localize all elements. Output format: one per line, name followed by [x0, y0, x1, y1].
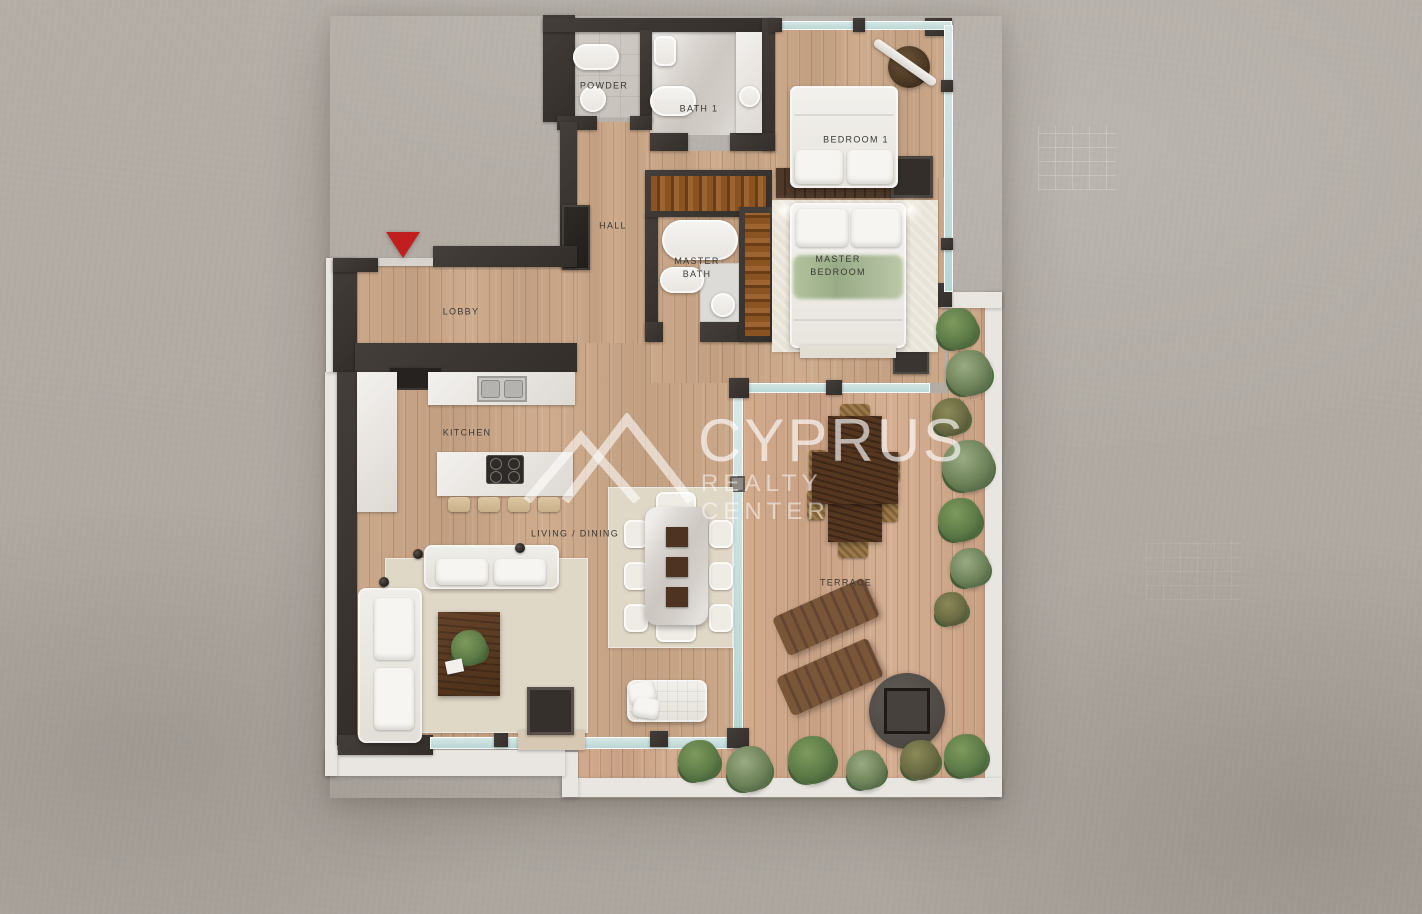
closet — [739, 207, 776, 342]
bedside-lamp — [776, 202, 792, 218]
sink-basin — [504, 380, 523, 398]
burner — [490, 471, 502, 483]
bedside-lamp — [902, 202, 918, 218]
pillow — [795, 150, 843, 184]
fire-pit-insert — [884, 688, 930, 734]
room-label-lobby: LOBBY — [443, 306, 480, 319]
foot-bench — [800, 345, 896, 358]
plant — [678, 740, 720, 782]
wall — [333, 258, 357, 372]
room-label-bedroom1: BEDROOM 1 — [823, 134, 889, 147]
glass-mullion — [853, 18, 865, 32]
bath1-vanity-counter — [736, 32, 762, 133]
room-label-kitchen: KITCHEN — [443, 427, 492, 440]
wall — [543, 18, 775, 32]
table-centerpiece — [666, 587, 688, 607]
watermark-tagline: REALTY CENTER — [701, 470, 950, 526]
pillow — [847, 150, 893, 184]
shower-drain — [711, 293, 735, 317]
master-bathtub — [662, 220, 738, 260]
plant — [934, 592, 968, 626]
kitchen-counter — [357, 372, 397, 512]
background-grid-marks — [1146, 540, 1241, 600]
room-label-bath1: BATH 1 — [680, 103, 719, 116]
floor-lamp — [515, 543, 525, 553]
wall — [630, 116, 652, 130]
cooktop — [486, 455, 524, 484]
entry-arrow-icon — [386, 232, 420, 258]
room-label-living-dining: LIVING / DINING — [531, 528, 619, 541]
floor-lamp — [413, 549, 423, 559]
wall — [337, 372, 357, 745]
tv-screen — [527, 687, 574, 735]
sink-basin — [481, 380, 500, 398]
burner — [508, 458, 520, 470]
daybed — [627, 680, 707, 722]
wall — [645, 322, 663, 342]
sofa-cushion — [436, 559, 488, 585]
wall — [762, 18, 775, 151]
bath1-sink — [739, 86, 760, 107]
plant — [726, 746, 772, 792]
book — [445, 658, 464, 674]
entry-threshold — [378, 258, 433, 266]
wall — [640, 30, 652, 122]
wall — [730, 133, 775, 151]
room-label-hall: HALL — [599, 220, 627, 233]
watermark: CYPRUS REALTY CENTER — [520, 408, 950, 508]
plant — [846, 750, 886, 790]
glass-mullion — [494, 733, 508, 747]
duvet-fold — [794, 114, 894, 116]
floor-plan-canvas: POWDER BATH 1 BEDROOM 1 HALL MASTER BATH… — [0, 0, 1422, 914]
background-grid-marks — [1038, 126, 1116, 190]
floor-lamp — [379, 577, 389, 587]
sofa — [358, 588, 422, 743]
exterior-wall-face — [325, 372, 337, 776]
closet-hanging-clothes — [651, 176, 766, 211]
wall — [650, 133, 688, 151]
pillow — [851, 209, 901, 247]
glass-mullion — [941, 80, 953, 92]
wall — [433, 246, 577, 267]
powder-sink — [573, 44, 619, 70]
glass-mullion — [770, 18, 782, 32]
coffee-table — [438, 612, 500, 696]
glass-mullion — [729, 378, 749, 398]
glass-mullion — [826, 380, 842, 395]
outdoor-chair — [838, 540, 868, 558]
glass-mullion — [727, 728, 749, 748]
plant — [944, 734, 988, 778]
table-centerpiece — [666, 527, 688, 547]
lobby-floor — [357, 266, 577, 343]
room-label-powder: POWDER — [580, 80, 628, 93]
bar-stool — [478, 497, 500, 512]
watermark-logo-icon — [523, 413, 695, 503]
kitchen-sink — [477, 376, 527, 402]
wall — [333, 258, 378, 272]
glass-wall — [944, 25, 953, 292]
room-label-line: BEDROOM — [810, 266, 866, 279]
plant — [950, 548, 990, 588]
fire-pit — [869, 673, 945, 749]
table-centerpiece — [666, 557, 688, 577]
room-label-line: BATH — [674, 268, 719, 281]
room-label-terrace: TERRACE — [820, 577, 872, 590]
terrace-parapet — [562, 778, 1002, 797]
watermark-brand: CYPRUS — [698, 406, 966, 475]
plant — [900, 740, 940, 780]
burner — [508, 471, 520, 483]
room-label-line: MASTER — [674, 255, 719, 268]
plant — [788, 736, 836, 784]
sofa-cushion — [374, 598, 414, 660]
room-label-master-bedroom: MASTER BEDROOM — [810, 253, 866, 279]
plant — [946, 350, 992, 396]
burner — [490, 458, 502, 470]
closet-hanging-clothes — [745, 213, 770, 336]
sofa-cushion — [374, 668, 414, 730]
sofa-cushion — [494, 559, 546, 585]
daybed-pillow — [631, 696, 660, 720]
dining-chair — [709, 604, 733, 632]
glass-mullion — [650, 731, 668, 747]
duvet-fold — [794, 319, 902, 321]
pillow — [796, 209, 848, 247]
room-label-master-bath: MASTER BATH — [674, 255, 719, 281]
glass-mullion — [941, 238, 953, 250]
bath1-toilet — [654, 36, 676, 66]
room-label-line: MASTER — [810, 253, 866, 266]
plant — [936, 308, 978, 350]
sofa — [424, 545, 559, 589]
dining-chair — [709, 562, 733, 590]
bar-stool — [448, 497, 470, 512]
